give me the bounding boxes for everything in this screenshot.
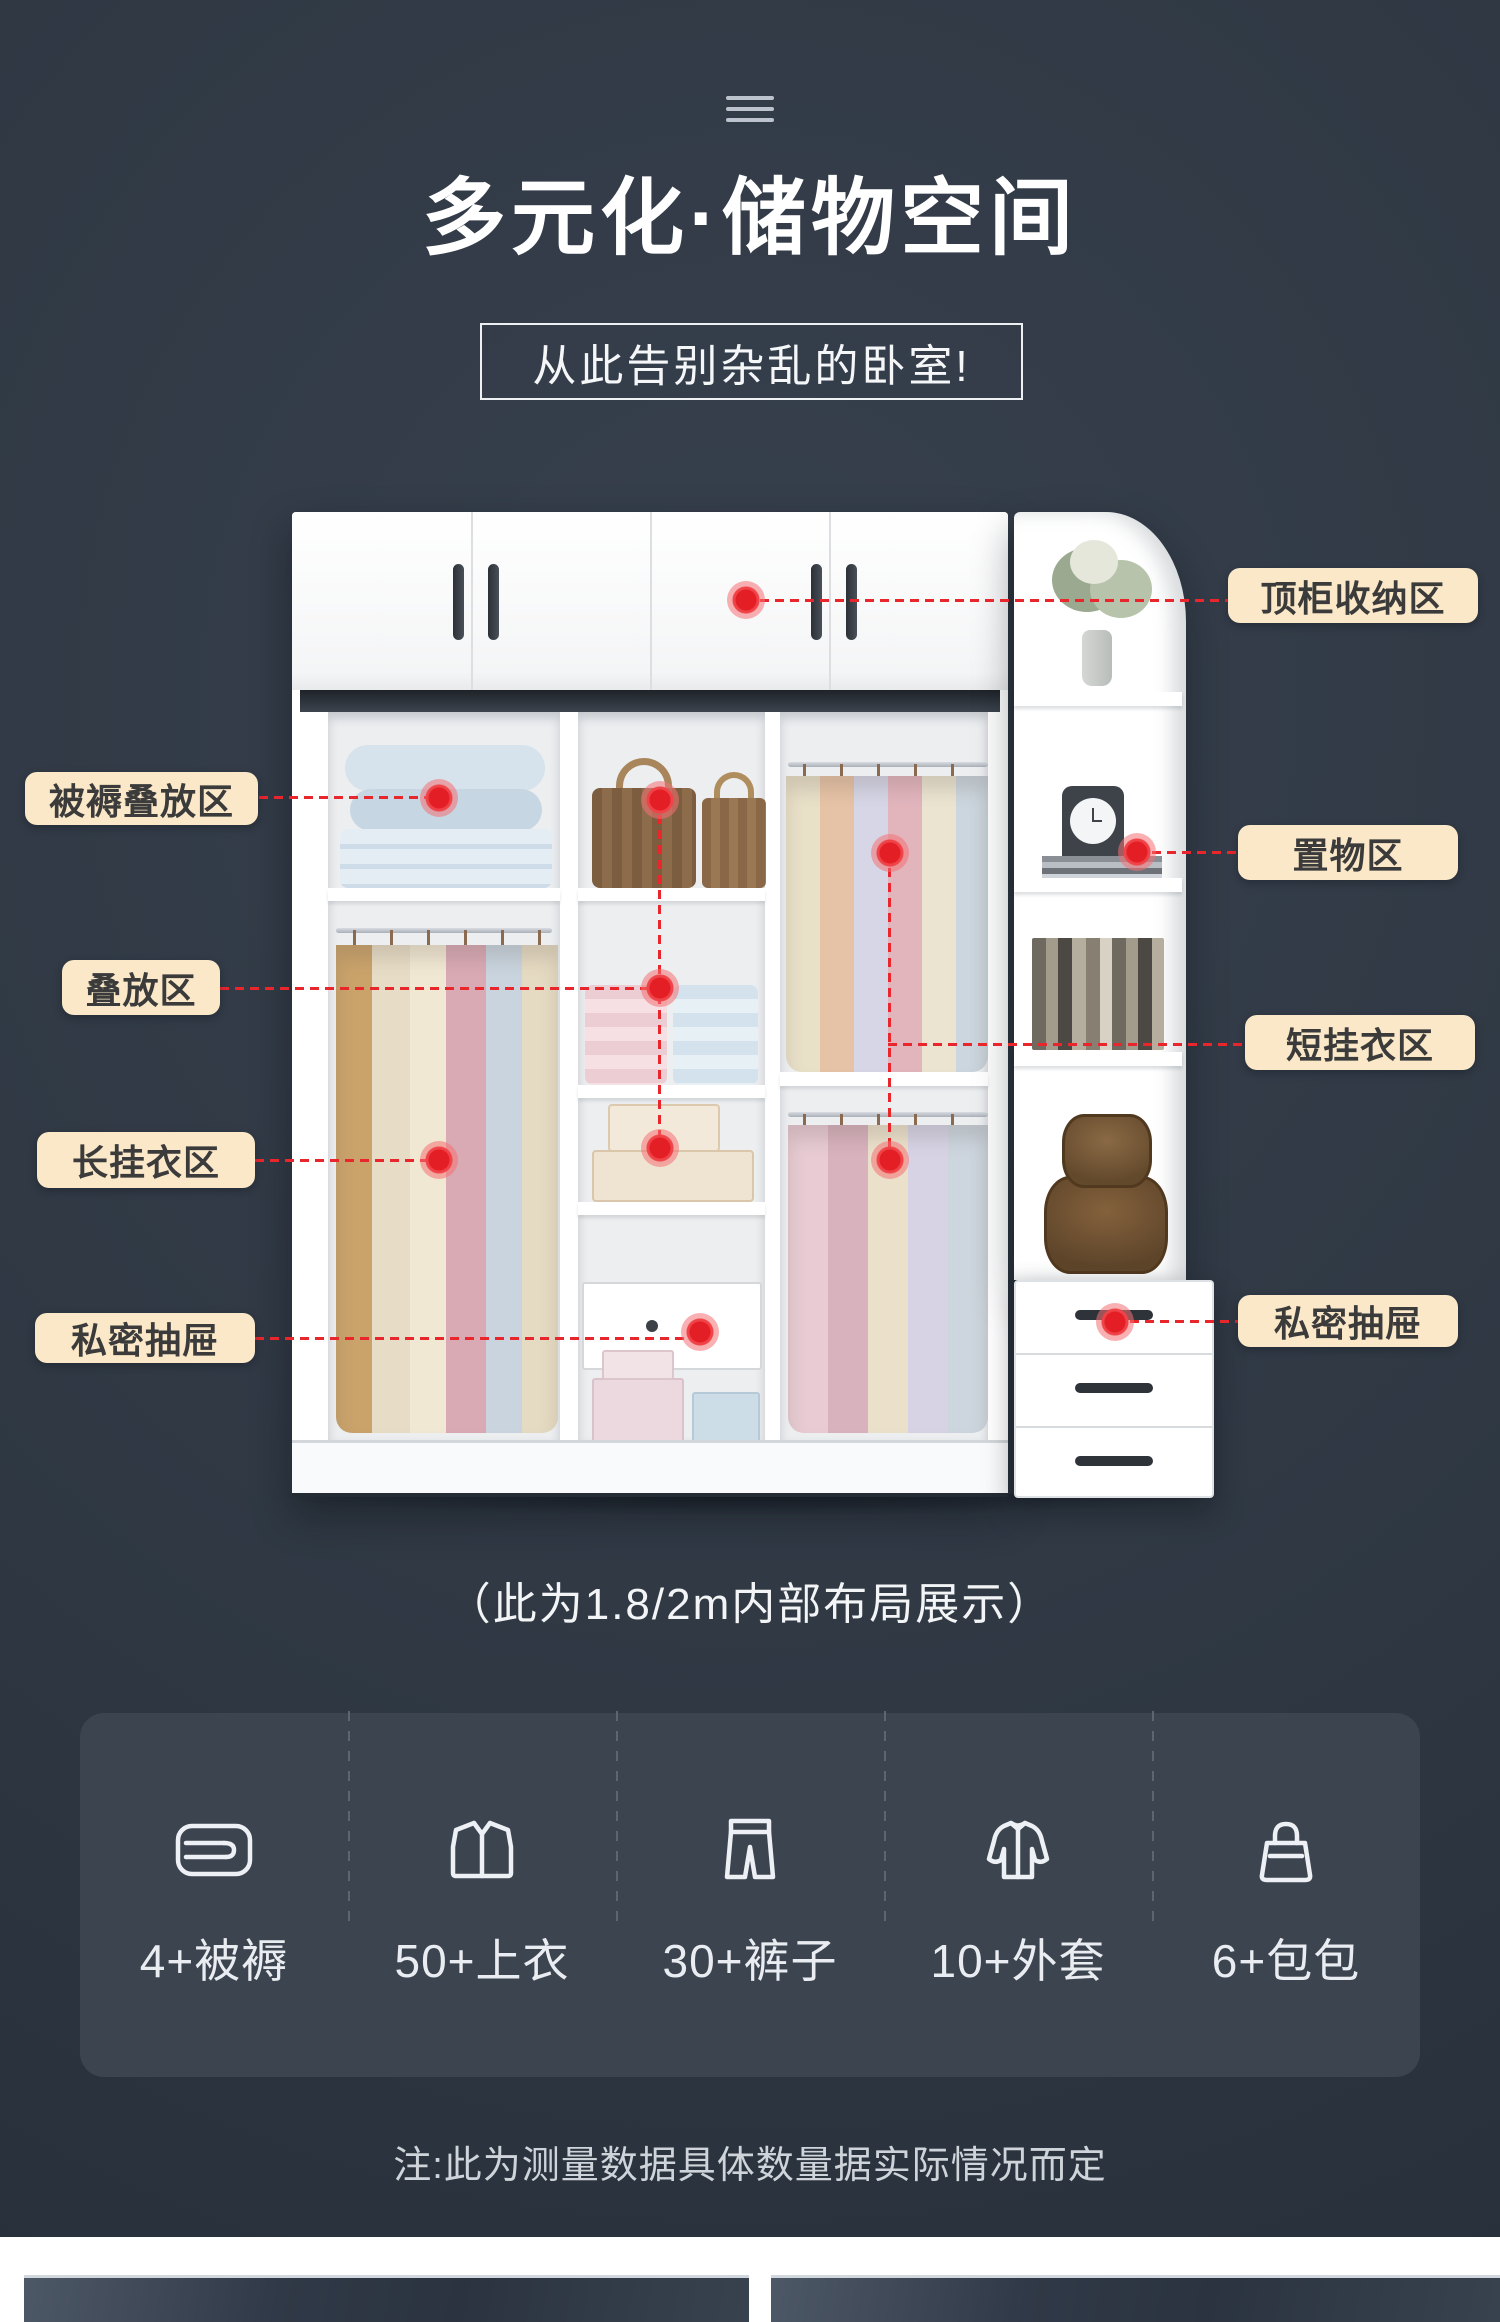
callout-text: 短挂衣区 — [1286, 1017, 1434, 1069]
storage-box — [602, 1350, 674, 1380]
stat-label: 6+包包 — [1212, 1925, 1360, 1991]
leader-line — [888, 853, 891, 1160]
hat-box — [1044, 1176, 1168, 1274]
shelf — [328, 888, 560, 901]
marker-dot — [1118, 833, 1156, 871]
stat-tops: 50+上衣 — [348, 1799, 616, 1991]
leader-line — [220, 987, 660, 990]
drawer-handle — [1075, 1456, 1153, 1466]
wardrobe-storage-infographic: 多元化·储物空间 从此告别杂乱的卧室! — [0, 0, 1500, 2322]
shelf — [578, 1085, 765, 1098]
marker-dot — [420, 779, 458, 817]
leader-line — [255, 1159, 438, 1162]
capacity-stats-card: 4+被褥 50+上衣 30+裤子 — [80, 1713, 1420, 2077]
shelf — [578, 888, 765, 901]
callout-text: 被褥叠放区 — [49, 773, 234, 825]
callout-private-drawer-right: 私密抽屉 — [1238, 1295, 1458, 1347]
tower-shelf — [1014, 878, 1182, 892]
callout-long-hanging-area: 长挂衣区 — [37, 1132, 255, 1188]
handbag — [702, 798, 766, 888]
stat-divider — [884, 1711, 886, 1931]
shelf — [578, 1202, 765, 1215]
callout-display-area: 置物区 — [1238, 825, 1458, 880]
stat-divider — [348, 1711, 350, 1931]
marker-dot — [641, 781, 679, 819]
stat-label: 10+外套 — [930, 1925, 1105, 1991]
cabinet-handle — [811, 564, 822, 640]
next-section-image-left — [24, 2275, 749, 2322]
folded-shirts-stack — [673, 985, 758, 1085]
hanger-hooks — [340, 930, 550, 946]
short-hanging-clothes-upper — [786, 776, 988, 1072]
page-title: 多元化·储物空间 — [0, 168, 1500, 269]
size-caption: （此为1.8/2m内部布局展示） — [0, 1568, 1500, 1632]
bedding-icon — [164, 1799, 264, 1899]
bag-icon — [1236, 1799, 1336, 1899]
cabinet-handle — [453, 564, 464, 640]
hat-box — [1062, 1114, 1152, 1188]
clock-hand — [1092, 820, 1102, 822]
callout-top-cabinet-area: 顶柜收纳区 — [1228, 568, 1478, 623]
folded-bedding-stack — [340, 829, 552, 888]
callout-text: 顶柜收纳区 — [1260, 570, 1445, 622]
callout-text: 私密抽屉 — [71, 1312, 219, 1364]
disclaimer-note: 注:此为测量数据具体数量据实际情况而定 — [0, 2134, 1500, 2189]
callout-text: 叠放区 — [85, 962, 196, 1014]
marker-dot — [641, 1129, 679, 1167]
callout-text: 置物区 — [1292, 827, 1403, 879]
three-lines-icon — [0, 96, 1500, 122]
next-section-image-right — [771, 2275, 1500, 2322]
book-row — [1032, 938, 1164, 1050]
leader-line — [745, 599, 1228, 602]
stat-bags: 6+包包 — [1152, 1799, 1420, 1991]
cabinet-handle — [846, 564, 857, 640]
cabinet-handle — [488, 564, 499, 640]
shelf — [780, 1072, 988, 1086]
leader-line — [259, 796, 438, 799]
callout-short-hanging-area: 短挂衣区 — [1245, 1015, 1475, 1070]
stat-coats: 10+外套 — [884, 1799, 1152, 1991]
stat-label: 30+裤子 — [662, 1925, 837, 1991]
marker-dot — [727, 581, 765, 619]
marker-dot — [681, 1313, 719, 1351]
stat-label: 50+上衣 — [394, 1925, 569, 1991]
jacket-icon — [968, 1799, 1068, 1899]
marker-dot — [871, 1141, 909, 1179]
marker-dot — [641, 969, 679, 1007]
drawer-handle — [1075, 1383, 1153, 1393]
tower-shelf — [1014, 1052, 1182, 1066]
subtitle-text: 从此告别杂乱的卧室! — [532, 330, 970, 394]
stat-divider — [616, 1711, 618, 1931]
callout-text: 私密抽屉 — [1274, 1295, 1422, 1347]
vase — [1082, 630, 1112, 686]
marker-dot — [420, 1141, 458, 1179]
leader-line — [255, 1337, 700, 1340]
drawer-divider — [1016, 1353, 1212, 1355]
callout-folding-area: 叠放区 — [62, 960, 220, 1015]
tower-shelf — [1014, 692, 1182, 706]
shirt-icon — [432, 1799, 532, 1899]
sliding-door-rail — [300, 690, 1000, 712]
long-hanging-clothes — [336, 945, 558, 1433]
flower-bouquet — [1070, 540, 1118, 584]
cabinet-door-divider — [471, 512, 473, 690]
marker-dot — [871, 834, 909, 872]
drawer-divider — [1016, 1426, 1212, 1428]
callout-bedding-area: 被褥叠放区 — [25, 772, 258, 825]
cabinet-door-divider — [650, 512, 652, 690]
stat-bedding: 4+被褥 — [80, 1799, 348, 1991]
subtitle-box: 从此告别杂乱的卧室! — [480, 323, 1023, 400]
stat-label: 4+被褥 — [140, 1925, 288, 1991]
wardrobe-plinth — [292, 1440, 1008, 1497]
leader-line — [888, 1043, 1245, 1046]
marker-dot — [1096, 1303, 1134, 1341]
callout-text: 长挂衣区 — [72, 1134, 220, 1186]
stat-divider — [1152, 1711, 1154, 1931]
pants-icon — [700, 1799, 800, 1899]
drawer-knob — [646, 1320, 658, 1332]
callout-private-drawer-left: 私密抽屉 — [35, 1313, 255, 1363]
stat-pants: 30+裤子 — [616, 1799, 884, 1991]
